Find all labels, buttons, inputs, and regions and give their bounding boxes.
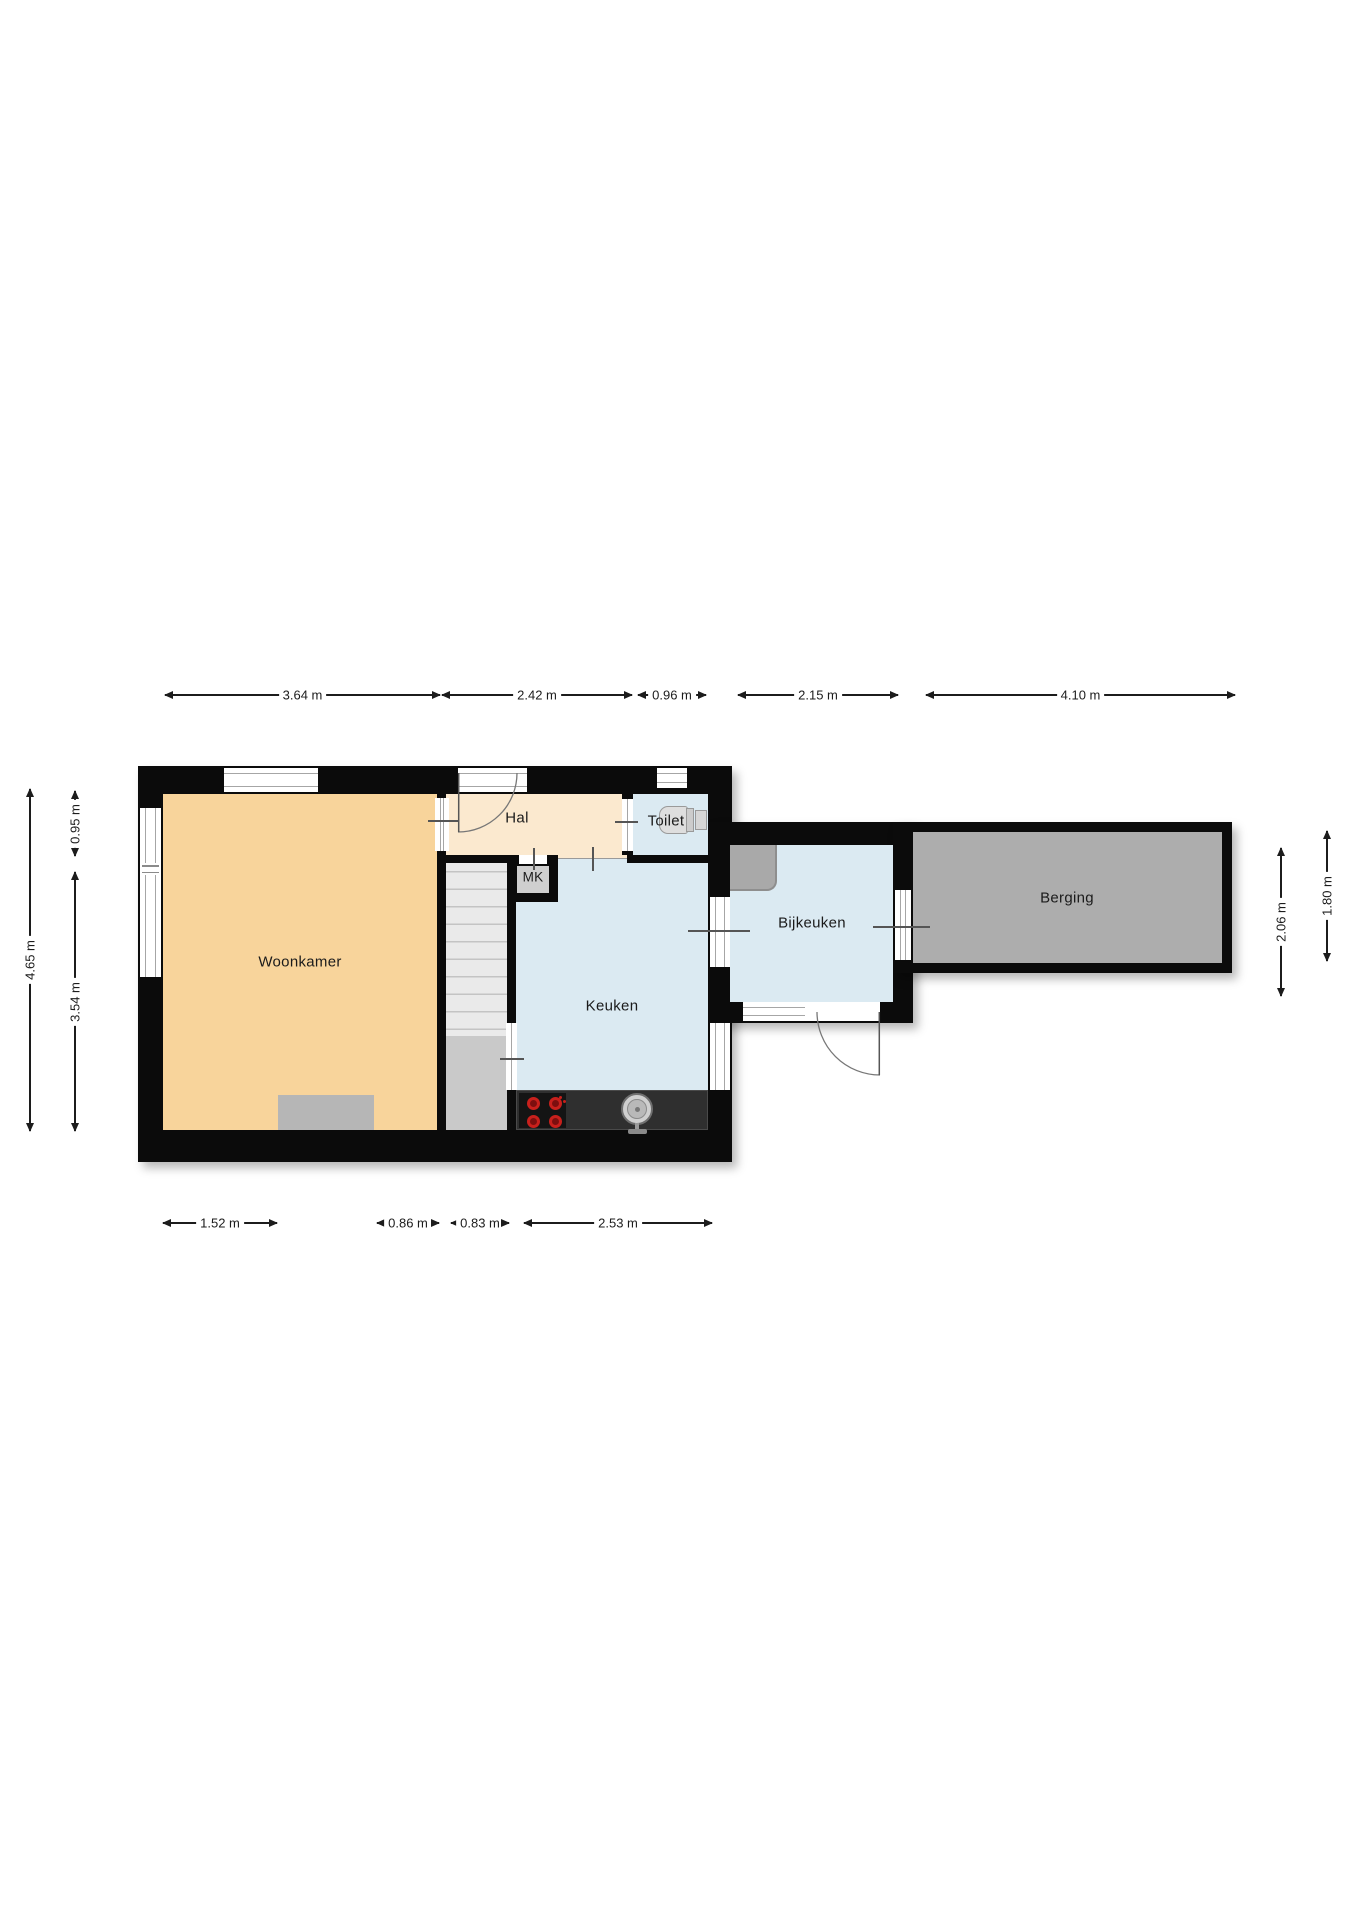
window-woonkamer-top-glass-line — [224, 773, 318, 774]
window-woonkamer-left — [140, 808, 161, 977]
window-toilet-top-glass-line — [657, 773, 687, 774]
window-left-transom — [140, 863, 161, 875]
window-bijkeuken-bottom — [743, 1002, 805, 1021]
floorplan-drawing — [0, 0, 1358, 1920]
toilet-hand-basin — [695, 810, 707, 830]
wall-toilet-bottom — [622, 855, 708, 863]
room-label-toilet: Toilet — [648, 813, 685, 830]
stairs-landing — [446, 1036, 507, 1130]
door-toilet-jamb — [622, 851, 633, 855]
tick-opening-stairs-keuken — [500, 1058, 524, 1060]
opening-stairs-keuken — [506, 1023, 517, 1090]
tick-window-bijkeuken-berging — [873, 926, 930, 928]
window-bijkeuken-berging-glass-line — [900, 890, 901, 960]
front-door-opening — [458, 768, 527, 792]
room-label-bijkeuken: Bijkeuken — [778, 915, 846, 932]
window-bijkeuken-bottom-glass-line — [743, 1015, 805, 1016]
opening-woonkamer-hal-glass-line — [440, 798, 441, 851]
stove-indicator-dot — [559, 1096, 562, 1099]
room-label-woonkamer: Woonkamer — [258, 954, 341, 971]
window-keuken-bijkeuken-glass-line — [724, 897, 725, 967]
window-keuken-right-low-glass-line — [715, 1023, 716, 1090]
window-keuken-right-low-glass-line — [724, 1023, 725, 1090]
floorplan: Woonkamer Hal Toilet MK Keuken Bijkeuken… — [0, 0, 1358, 1920]
tick-door-toilet — [615, 821, 638, 823]
stairs-treads — [446, 855, 507, 1036]
front-door-opening-glass-line — [458, 773, 527, 774]
woonkamer-sideboard — [278, 1095, 374, 1130]
window-left-transom-line — [142, 865, 159, 867]
tick-opening-hal-keuken — [592, 847, 594, 871]
room-label-berging: Berging — [1040, 890, 1094, 907]
stove-burner — [549, 1115, 562, 1128]
room-label-hal: Hal — [505, 810, 528, 827]
sink-faucet-base — [628, 1129, 647, 1134]
window-bijkeuken-bottom-glass-line — [743, 1007, 805, 1008]
opening-woonkamer-hal-glass-line — [443, 798, 444, 851]
stove-burner — [527, 1097, 540, 1110]
window-bijkeuken-berging-glass-line — [905, 890, 906, 960]
stove-burner — [527, 1115, 540, 1128]
door-toilet-jamb — [622, 794, 633, 799]
front-door-opening-glass-line — [458, 786, 527, 787]
opening-woonkamer-hal — [435, 798, 449, 851]
room-label-mk: MK — [523, 870, 544, 885]
window-keuken-bijkeuken — [710, 897, 730, 967]
window-toilet-top-glass-line — [657, 782, 687, 783]
window-woonkamer-top — [224, 768, 318, 792]
door-frame-bijkeuken — [805, 1002, 817, 1021]
sink-drain — [635, 1107, 640, 1112]
tick-door-mk — [533, 848, 535, 870]
window-keuken-bijkeuken-glass-line — [715, 897, 716, 967]
tick-window-keuken-bijkeuken — [688, 930, 750, 932]
window-toilet-top — [657, 768, 687, 788]
window-woonkamer-left-glass-line — [145, 808, 146, 977]
stove-indicator-dot — [563, 1100, 566, 1103]
tick-opening-woonkamer-hal — [428, 820, 458, 822]
window-left-transom-line — [142, 872, 159, 874]
bijkeuken-appliance — [730, 845, 777, 891]
window-woonkamer-top-glass-line — [224, 786, 318, 787]
door-toilet — [622, 799, 633, 851]
window-keuken-right-low — [710, 1023, 730, 1090]
door-opening-bijkeuken — [817, 1002, 880, 1021]
room-label-keuken: Keuken — [586, 998, 639, 1015]
window-woonkamer-left-glass-line — [155, 808, 156, 977]
opening-stairs-keuken-glass-line — [511, 1023, 512, 1090]
toilet-cistern — [686, 808, 694, 832]
door-toilet-glass-line — [627, 799, 628, 851]
window-bijkeuken-berging — [895, 890, 911, 960]
